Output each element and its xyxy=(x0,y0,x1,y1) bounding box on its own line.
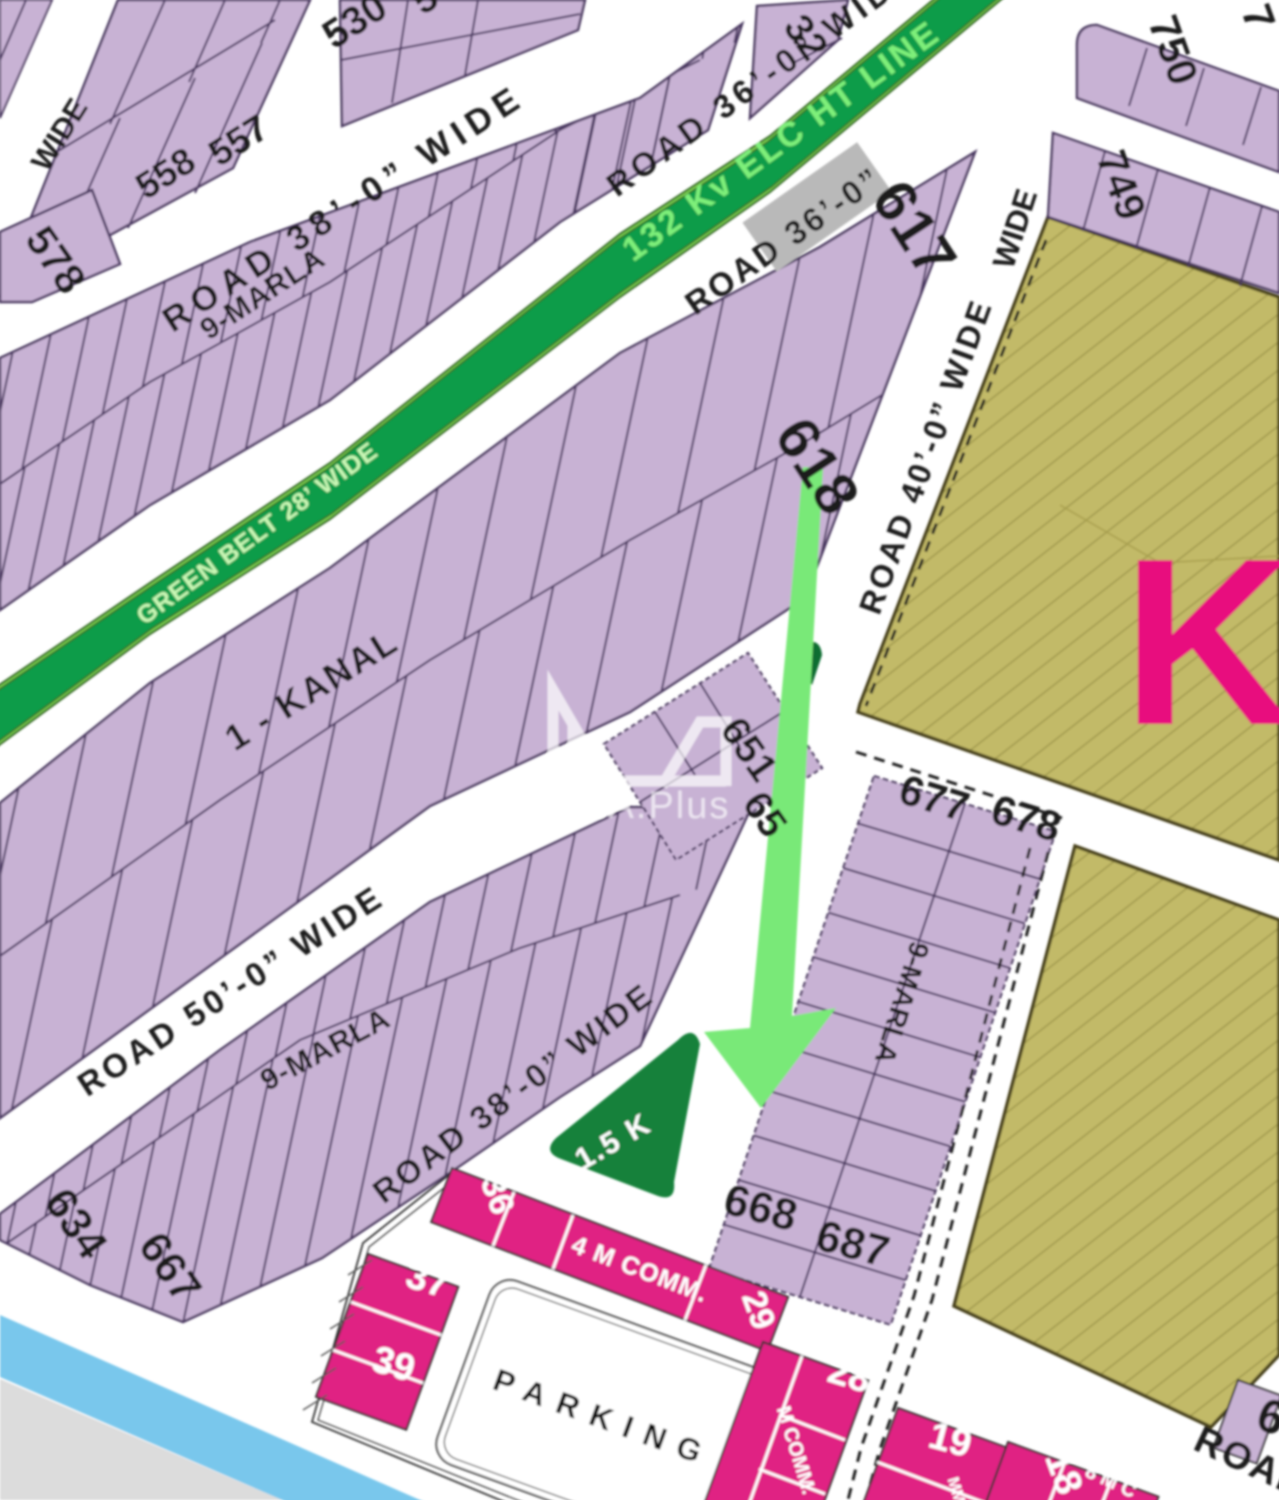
svg-text:DHA.Plus: DHA.Plus xyxy=(550,785,731,827)
svg-text:K: K xyxy=(1122,510,1279,775)
